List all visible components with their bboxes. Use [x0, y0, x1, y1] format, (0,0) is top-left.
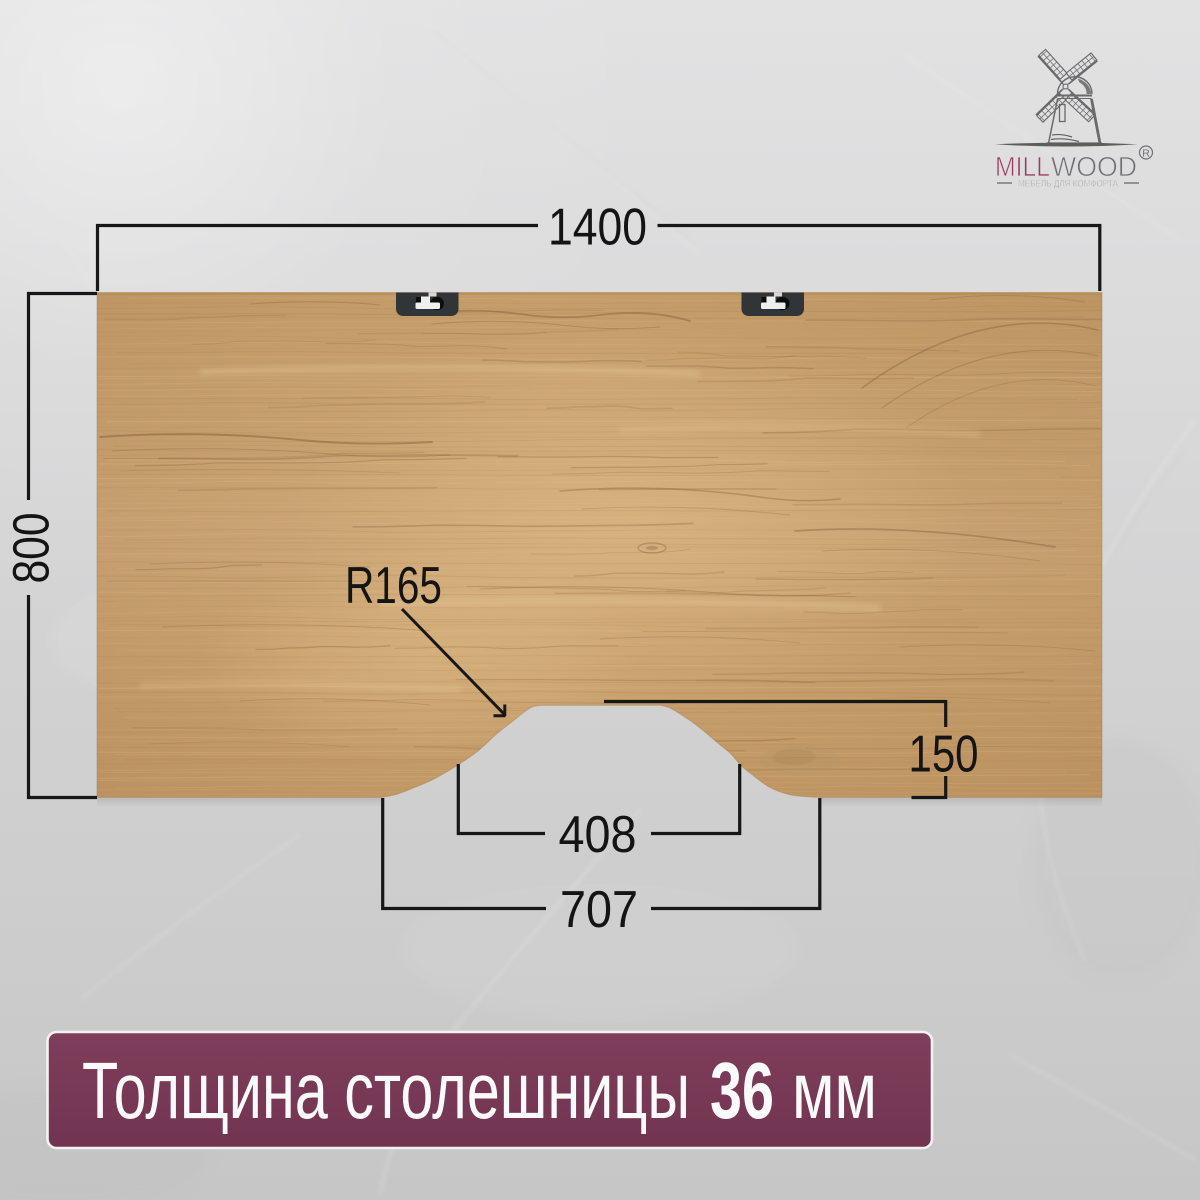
svg-text:WOOD: WOOD [1051, 151, 1137, 182]
svg-text:МЕБЕЛЬ ДЛЯ КОМФОРТА: МЕБЕЛЬ ДЛЯ КОМФОРТА [1018, 179, 1118, 189]
svg-text:MILL: MILL [995, 151, 1050, 182]
svg-text:800: 800 [3, 513, 60, 584]
svg-text:36: 36 [710, 1046, 774, 1135]
svg-text:408: 408 [559, 806, 637, 864]
svg-text:150: 150 [909, 726, 979, 784]
svg-text:707: 707 [560, 881, 638, 939]
svg-text:мм: мм [792, 1046, 877, 1135]
svg-text:1400: 1400 [548, 199, 647, 257]
svg-text:R: R [1142, 148, 1150, 160]
svg-text:R165: R165 [345, 557, 442, 615]
svg-text:Толщина столешницы: Толщина столешницы [82, 1046, 690, 1135]
